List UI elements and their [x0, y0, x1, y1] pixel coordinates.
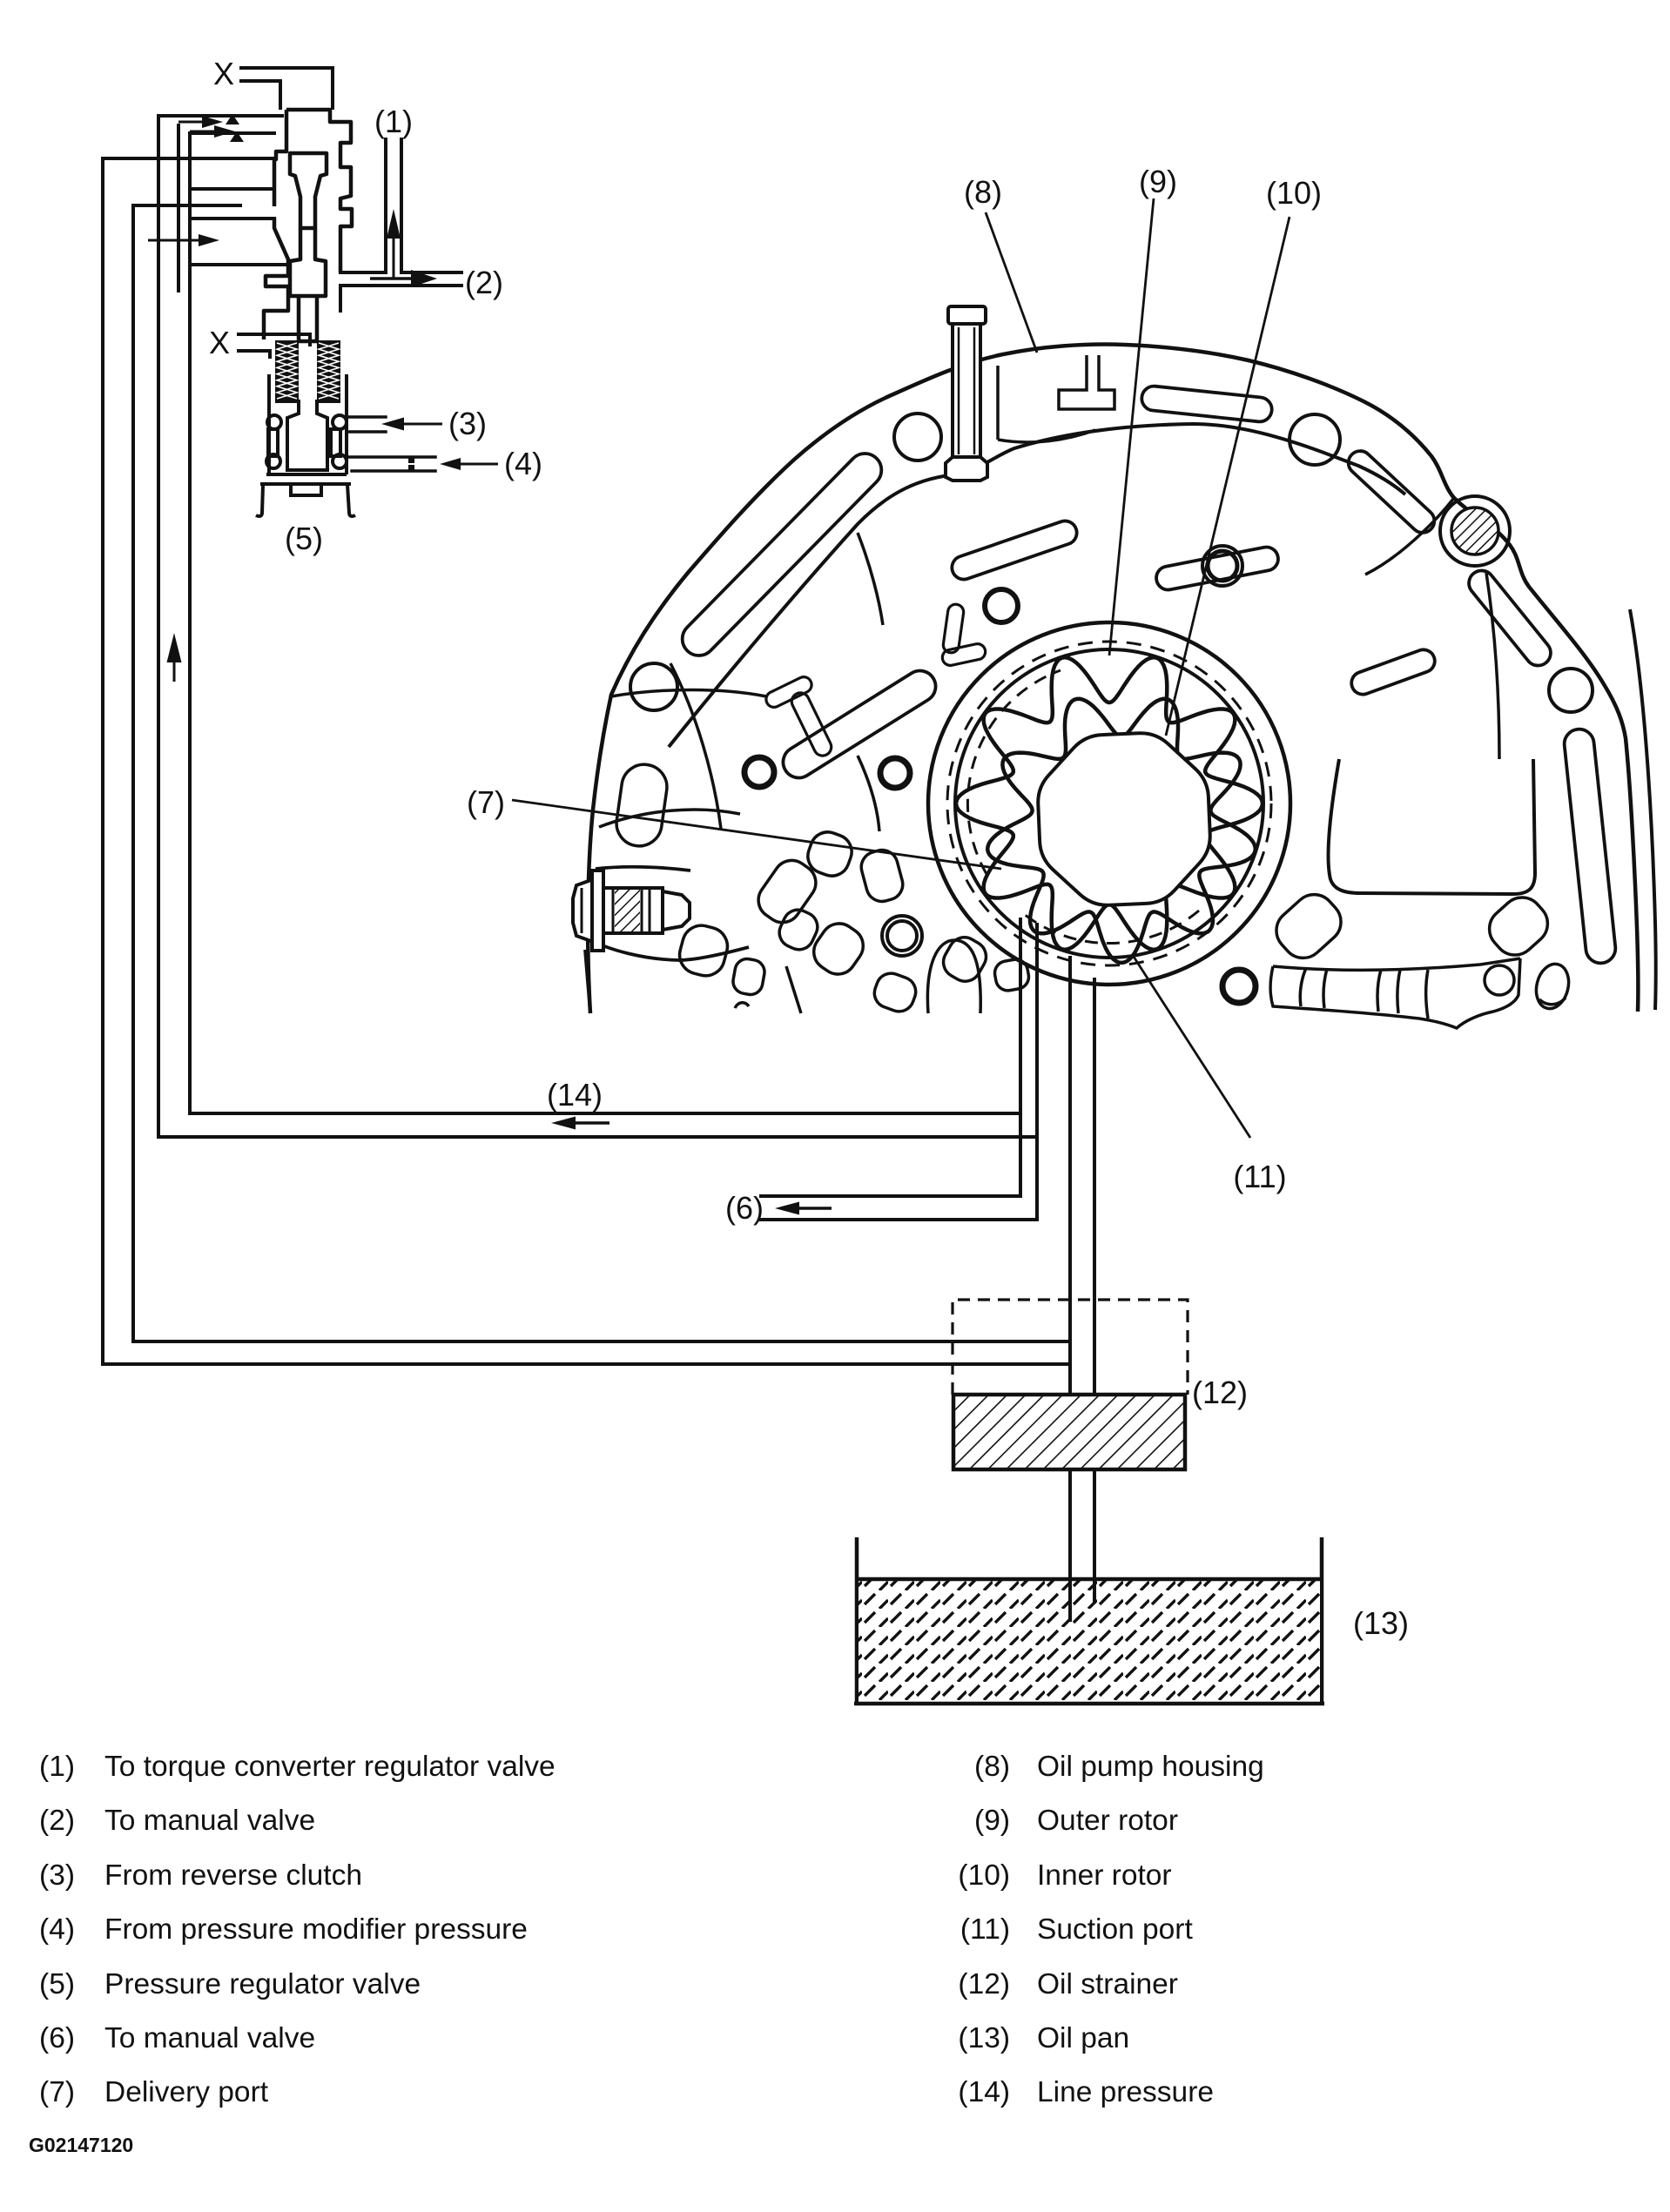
svg-text:(14): (14) — [958, 2076, 1010, 2108]
svg-text:(14): (14) — [547, 1077, 603, 1113]
svg-text:From reverse clutch: From reverse clutch — [104, 1859, 362, 1892]
svg-text:(9): (9) — [1139, 164, 1177, 199]
svg-text:(1): (1) — [39, 1751, 75, 1783]
svg-text:(1): (1) — [374, 104, 413, 139]
svg-text:To manual valve: To manual valve — [104, 2022, 315, 2054]
svg-text:(2): (2) — [465, 265, 503, 300]
svg-text:X: X — [213, 56, 234, 91]
svg-text:(12): (12) — [958, 1968, 1010, 2000]
svg-text:(4): (4) — [504, 446, 542, 481]
svg-text:(11): (11) — [960, 1913, 1010, 1946]
svg-text:(8): (8) — [964, 174, 1002, 210]
svg-text:Oil strainer: Oil strainer — [1037, 1968, 1178, 2000]
svg-text:Suction port: Suction port — [1037, 1913, 1193, 1946]
svg-text:(3): (3) — [39, 1859, 75, 1892]
svg-text:Oil pump housing: Oil pump housing — [1037, 1751, 1264, 1783]
svg-text:From pressure modifier pressur: From pressure modifier pressure — [104, 1913, 528, 1946]
svg-text:(12): (12) — [1192, 1375, 1248, 1410]
svg-text:(5): (5) — [39, 1968, 75, 2000]
svg-text:(10): (10) — [1266, 175, 1322, 211]
svg-text:To torque converter regulator: To torque converter regulator valve — [104, 1751, 556, 1783]
svg-text:Pressure regulator valve: Pressure regulator valve — [104, 1968, 421, 2000]
svg-text:(5): (5) — [285, 521, 323, 556]
svg-text:Line pressure: Line pressure — [1037, 2076, 1214, 2108]
svg-text:(10): (10) — [958, 1859, 1010, 1892]
svg-text:(9): (9) — [974, 1805, 1010, 1837]
svg-text:(6): (6) — [39, 2022, 75, 2054]
svg-text:(8): (8) — [974, 1751, 1010, 1783]
svg-text:(13): (13) — [958, 2022, 1010, 2054]
svg-text:Inner rotor: Inner rotor — [1037, 1859, 1172, 1892]
svg-text:G02147120: G02147120 — [29, 2134, 133, 2156]
svg-text:X: X — [209, 325, 230, 360]
svg-text:Outer rotor: Outer rotor — [1037, 1805, 1178, 1837]
svg-text:(13): (13) — [1353, 1605, 1409, 1641]
svg-text:(11): (11) — [1233, 1159, 1286, 1194]
svg-text:Delivery port: Delivery port — [104, 2076, 269, 2108]
svg-text:(7): (7) — [467, 784, 505, 820]
svg-text:Oil pan: Oil pan — [1037, 2022, 1129, 2054]
svg-text:(4): (4) — [39, 1913, 75, 1946]
svg-text:(7): (7) — [39, 2076, 75, 2108]
svg-text:To manual valve: To manual valve — [104, 1805, 315, 1837]
svg-text:(2): (2) — [39, 1805, 75, 1837]
svg-text:(3): (3) — [448, 406, 487, 441]
svg-text:(6): (6) — [725, 1190, 764, 1226]
